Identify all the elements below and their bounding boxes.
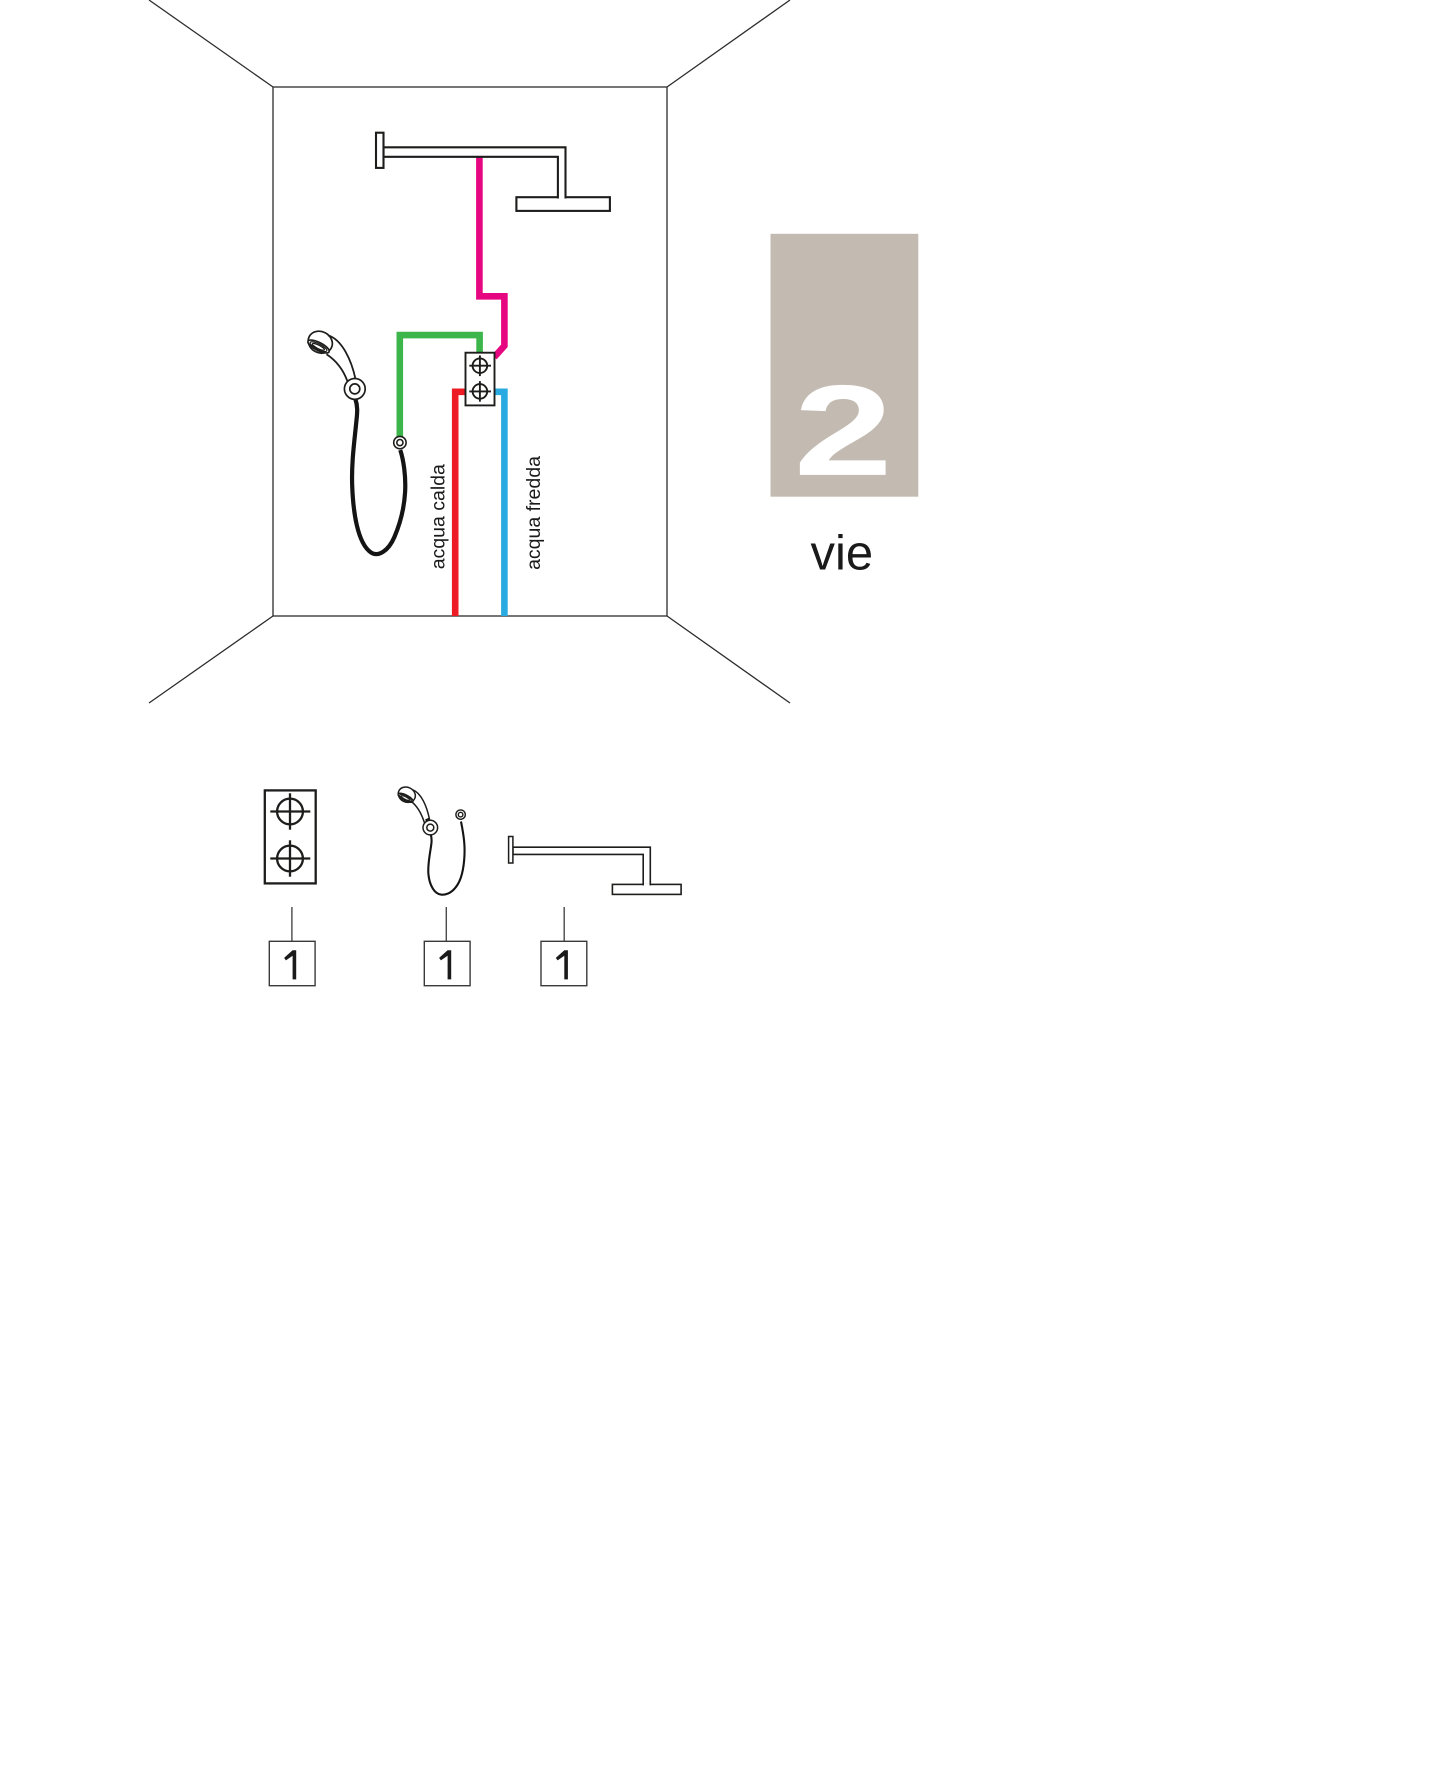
svg-text:2: 2 bbox=[794, 358, 893, 502]
svg-text:acqua fredda: acqua fredda bbox=[523, 456, 545, 570]
svg-text:acqua calda: acqua calda bbox=[428, 464, 450, 569]
svg-text:vie: vie bbox=[810, 526, 873, 580]
